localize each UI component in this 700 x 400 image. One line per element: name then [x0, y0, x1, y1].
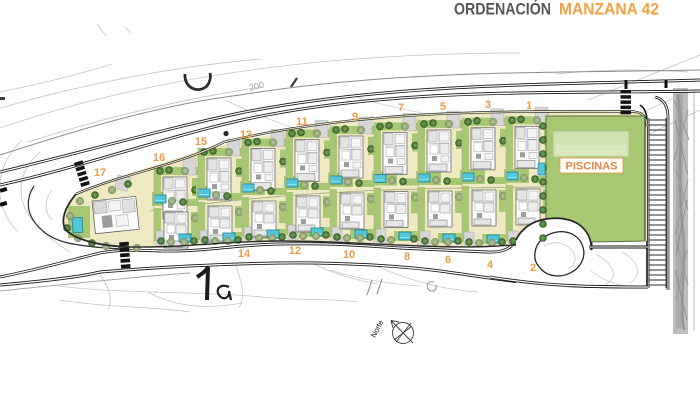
svg-text:ORDENACIÓN: ORDENACIÓN [454, 0, 551, 19]
svg-text:PISCINAS: PISCINAS [566, 161, 618, 173]
svg-text:6: 6 [445, 254, 451, 266]
svg-text:13: 13 [240, 129, 252, 141]
svg-text:2: 2 [530, 262, 536, 274]
svg-text:12: 12 [289, 245, 301, 257]
svg-text:7: 7 [398, 102, 404, 114]
svg-text:16: 16 [153, 152, 165, 164]
svg-text:5: 5 [440, 101, 446, 113]
svg-text:17: 17 [94, 167, 106, 179]
svg-text:8: 8 [404, 251, 410, 263]
svg-text:15: 15 [195, 136, 207, 148]
svg-text:4: 4 [487, 259, 494, 271]
svg-text:3: 3 [485, 99, 491, 111]
svg-text:MANZANA 42: MANZANA 42 [559, 1, 659, 19]
svg-text:11: 11 [296, 116, 308, 128]
svg-text:14: 14 [238, 248, 251, 260]
svg-text:9: 9 [352, 111, 358, 123]
svg-text:10: 10 [343, 249, 355, 261]
svg-text:1: 1 [526, 100, 532, 112]
